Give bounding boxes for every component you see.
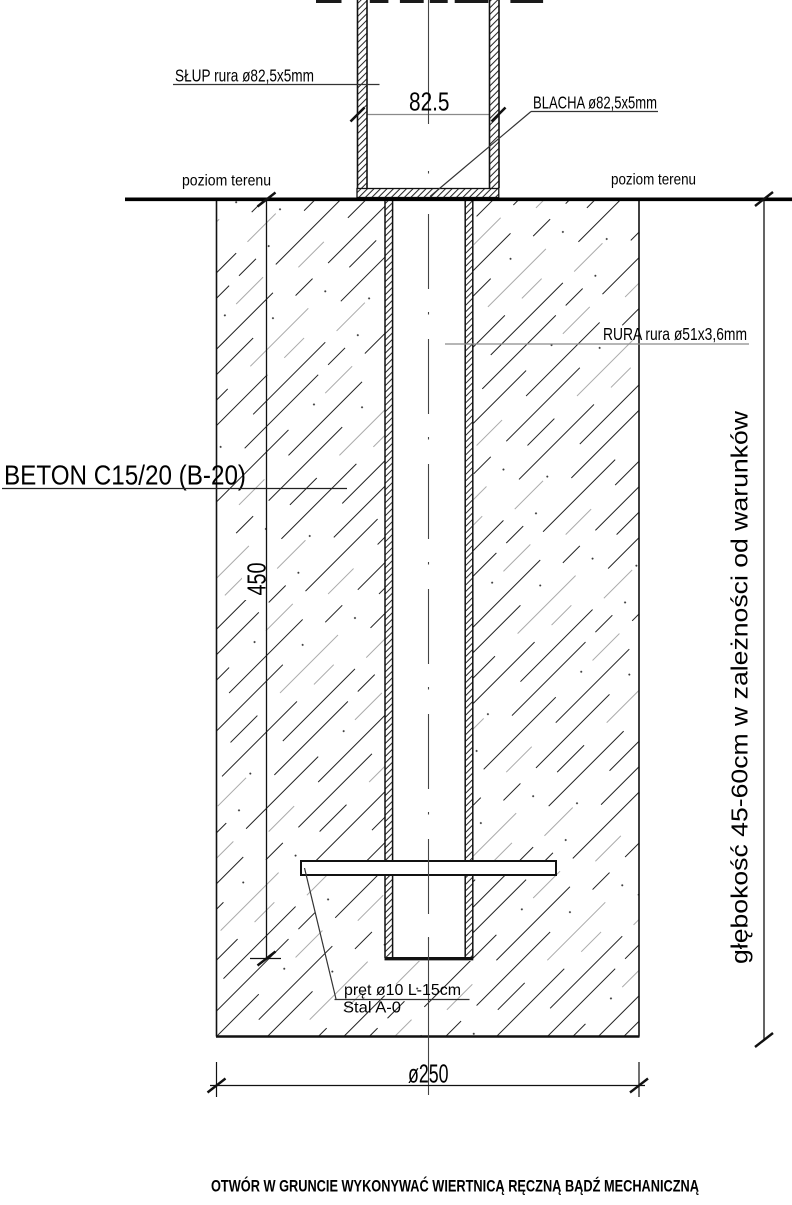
svg-text:poziom terenu: poziom terenu <box>611 172 696 189</box>
svg-text:82.5: 82.5 <box>409 87 450 117</box>
svg-text:SŁUP rura ø82,5x5mm: SŁUP rura ø82,5x5mm <box>175 66 314 86</box>
svg-text:BETON C15/20 (B-20): BETON C15/20 (B-20) <box>4 460 246 491</box>
svg-text:ø250: ø250 <box>408 1059 449 1089</box>
svg-text:BLACHA ø82,5x5mm: BLACHA ø82,5x5mm <box>533 93 657 113</box>
svg-text:OTWÓR W GRUNCIE WYKONYWAĆ WIER: OTWÓR W GRUNCIE WYKONYWAĆ WIERTNICĄ RĘCZ… <box>211 1177 699 1196</box>
svg-text:RURA rura ø51x3,6mm: RURA rura ø51x3,6mm <box>603 324 747 344</box>
svg-text:głębokość 45-60cm w zależności: głębokość 45-60cm w zależności od warunk… <box>727 411 753 964</box>
svg-text:pręt ø10 L-15cm: pręt ø10 L-15cm <box>344 982 461 999</box>
svg-text:poziom terenu: poziom terenu <box>182 173 271 190</box>
svg-text:450: 450 <box>242 563 272 596</box>
svg-text:Stal A-0: Stal A-0 <box>343 1000 401 1017</box>
